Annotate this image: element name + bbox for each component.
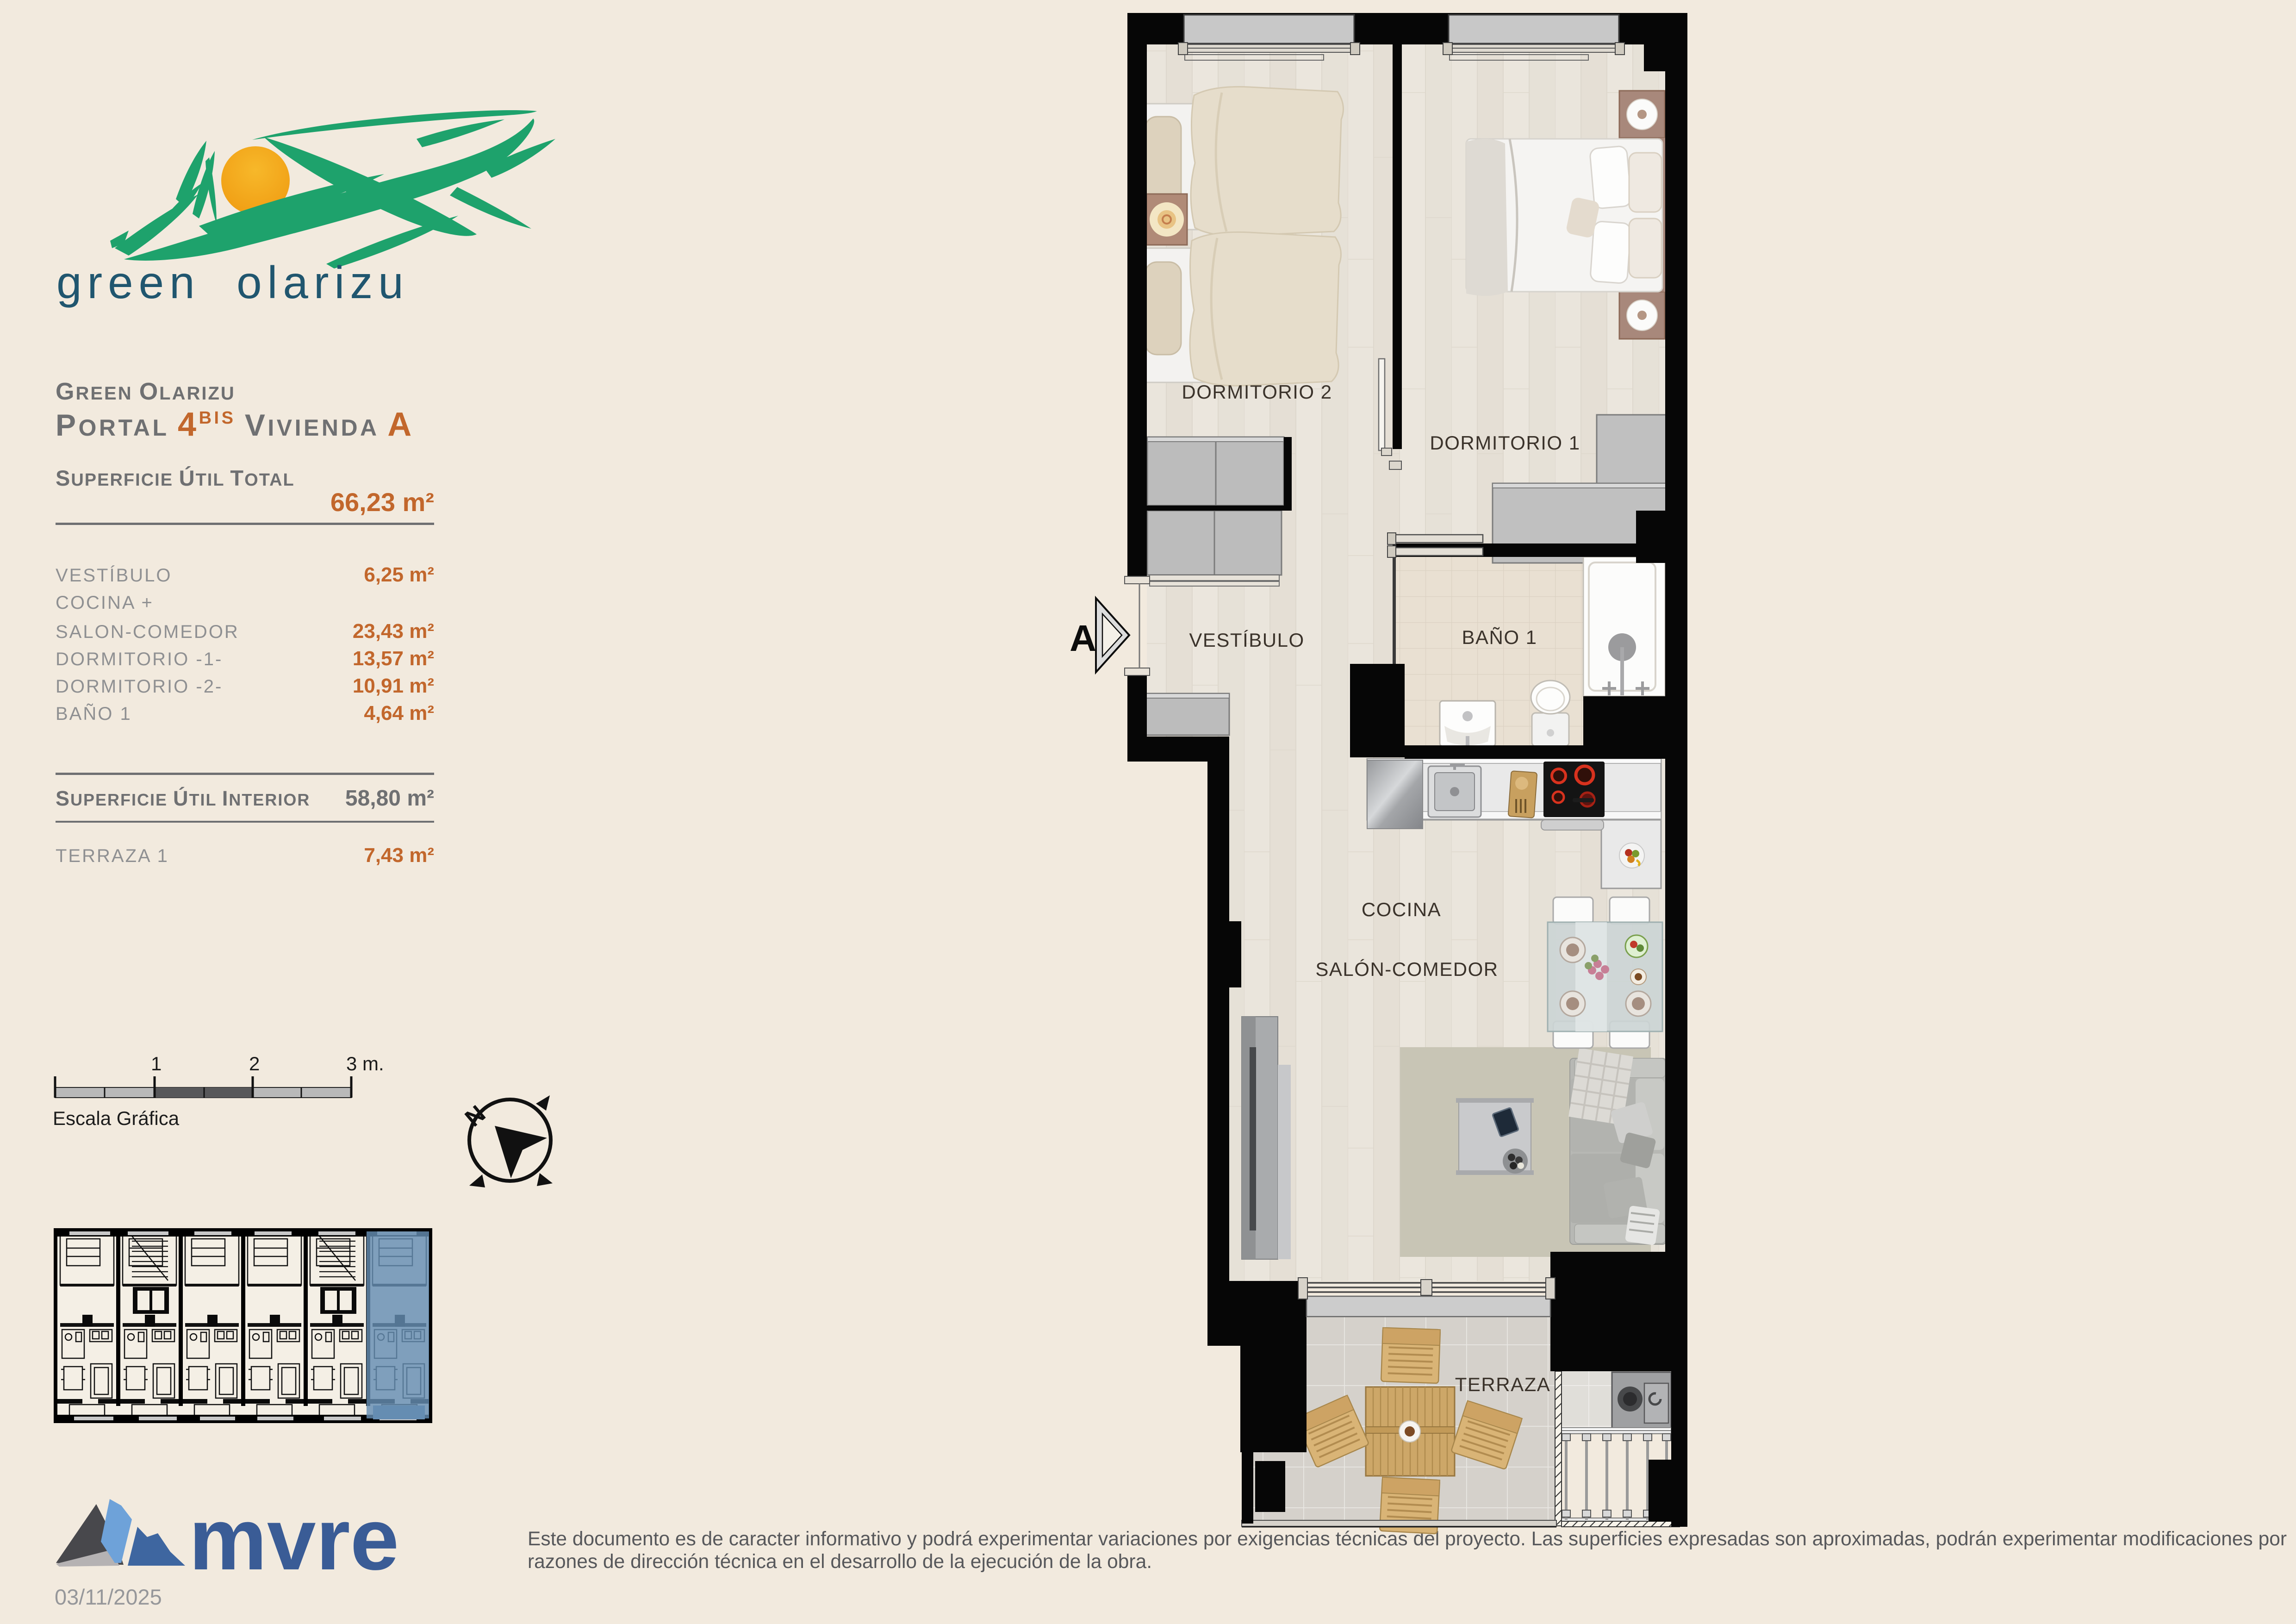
svg-text:3 m.: 3 m.	[346, 1053, 384, 1074]
svg-text:03/11/2025: 03/11/2025	[55, 1585, 162, 1609]
svg-text:COCINA +: COCINA +	[56, 593, 154, 613]
svg-text:COCINA: COCINA	[1362, 899, 1441, 920]
svg-text:razones de dirección técnica e: razones de dirección técnica en el desar…	[528, 1551, 1152, 1573]
svg-text:10,91 m²: 10,91 m²	[353, 675, 434, 697]
svg-text:23,43 m²: 23,43 m²	[353, 620, 434, 643]
svg-text:VESTÍBULO: VESTÍBULO	[1189, 629, 1304, 651]
svg-text:7,43 m²: 7,43 m²	[364, 844, 434, 867]
svg-text:SALON-COMEDOR: SALON-COMEDOR	[56, 622, 239, 642]
svg-text:BAÑO 1: BAÑO 1	[56, 703, 132, 724]
svg-text:mvre: mvre	[189, 1490, 399, 1588]
svg-text:DORMITORIO -1-: DORMITORIO -1-	[56, 649, 223, 669]
svg-text:4,64 m²: 4,64 m²	[364, 702, 434, 725]
svg-text:66,23 m²: 66,23 m²	[330, 487, 434, 517]
svg-text:BAÑO 1: BAÑO 1	[1462, 626, 1537, 648]
svg-text:green olarizu: green olarizu	[56, 257, 409, 308]
svg-text:TERRAZA 1: TERRAZA 1	[56, 846, 169, 866]
svg-text:SUPERFICIE ÚTIL INTERIOR: SUPERFICIE ÚTIL INTERIOR	[56, 787, 310, 810]
svg-text:DORMITORIO 2: DORMITORIO 2	[1182, 381, 1332, 403]
svg-text:DORMITORIO -2-: DORMITORIO -2-	[56, 676, 223, 697]
svg-text:58,80 m²: 58,80 m²	[345, 786, 434, 811]
svg-text:2: 2	[249, 1053, 260, 1074]
svg-text:VESTÍBULO: VESTÍBULO	[56, 565, 172, 586]
svg-text:1: 1	[151, 1053, 162, 1074]
svg-text:DORMITORIO 1: DORMITORIO 1	[1430, 432, 1580, 454]
svg-text:13,57 m²: 13,57 m²	[353, 647, 434, 670]
svg-text:Escala Gráfica: Escala Gráfica	[53, 1107, 180, 1129]
svg-text:6,25 m²: 6,25 m²	[364, 563, 434, 586]
svg-text:TERRAZA: TERRAZA	[1455, 1374, 1551, 1395]
svg-text:A: A	[1070, 618, 1096, 659]
svg-text:SALÓN-COMEDOR: SALÓN-COMEDOR	[1315, 958, 1498, 980]
